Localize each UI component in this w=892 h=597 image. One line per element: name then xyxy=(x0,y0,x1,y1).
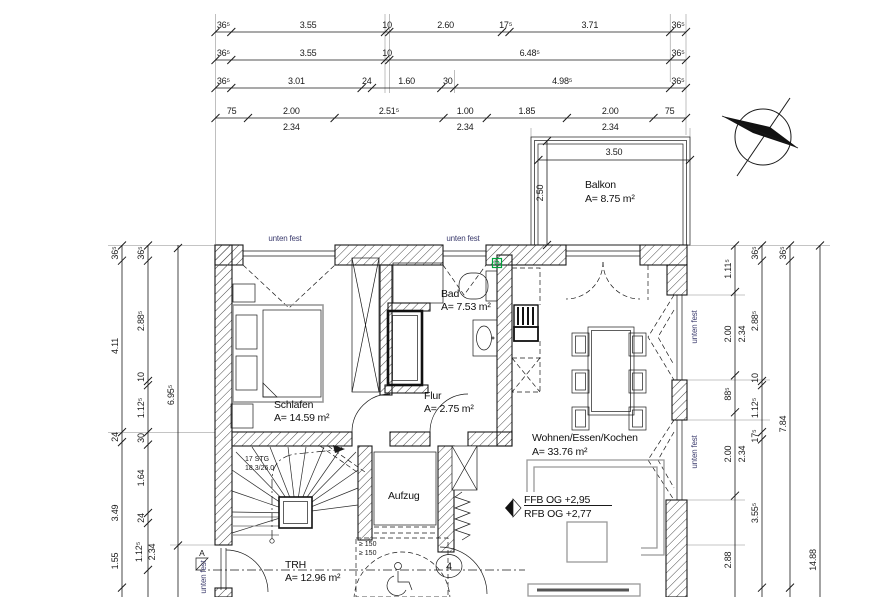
dim-label: 10 xyxy=(750,373,760,383)
dim-sublabel: 2.34 xyxy=(457,122,474,132)
room-label-flur: Flur xyxy=(424,390,442,402)
room-label-wohnen: Wohnen/Essen/Kochen xyxy=(532,432,638,444)
stair-ratio-label: 18.3/26.0 xyxy=(245,465,274,472)
unten-fest-label: unten fest xyxy=(268,234,302,243)
dim-label: 24 xyxy=(110,432,120,442)
shaft xyxy=(452,446,477,490)
living-furniture xyxy=(527,460,664,596)
chair xyxy=(572,370,589,393)
room-area-schlafen: A= 14.59 m² xyxy=(274,412,330,424)
dim-sublabel: 2.34 xyxy=(737,445,747,462)
turning-dim-2: ≥ 150 xyxy=(359,550,377,557)
unten-fest-label: unten fest xyxy=(690,434,699,468)
unten-fest-label: unten fest xyxy=(446,234,480,243)
dim-label: 10 xyxy=(136,372,146,382)
dim-label: 36⁵ xyxy=(750,246,760,260)
dim-label: 30 xyxy=(443,76,453,86)
room-area-bad: A= 7.53 m² xyxy=(441,301,491,313)
room-area-wohnen: A= 33.76 m² xyxy=(532,446,588,458)
turning-dim-1: ≥ 150 xyxy=(359,541,377,548)
stove xyxy=(514,305,538,341)
floor-plan-canvas: 36⁵ 3.55 10 2.60 17⁵ 3.71 36⁵ 36⁵ 3.55 1… xyxy=(0,0,892,597)
dim-label: 75 xyxy=(227,106,237,116)
dim-label: 1.55 xyxy=(110,552,120,569)
dim-label: 1.12⁵ xyxy=(750,397,760,418)
dim-label: 1.12⁵ xyxy=(136,397,146,418)
washbasin xyxy=(473,320,497,356)
section-marker-label: A xyxy=(199,548,205,558)
dim-label: 24 xyxy=(136,513,146,523)
dimension-labels-right: 1.11⁵ 2.00 2.34 88⁵ 2.00 2.34 2.88 36⁵ 2… xyxy=(723,246,818,571)
room-area-balkon: A= 8.75 m² xyxy=(585,193,635,205)
shower xyxy=(388,311,422,385)
dim-sublabel: 2.34 xyxy=(147,543,157,560)
room-label-balkon: Balkon xyxy=(585,179,616,191)
balcony: 3.50 2.50 Balkon A= 8.75 m² xyxy=(531,137,694,249)
dim-label: 2.51⁵ xyxy=(379,106,400,116)
stair: 17 STG 18.3/26.0 xyxy=(232,445,365,543)
radiator xyxy=(455,492,470,540)
door-arc-trh-entry xyxy=(226,550,268,592)
dim-label: 1.12⁵ xyxy=(134,541,144,562)
chair xyxy=(572,333,589,356)
room-label-schlafen: Schlafen xyxy=(274,399,314,411)
dim-label: 1.11⁵ xyxy=(723,259,733,279)
unten-fest-label: unten fest xyxy=(690,309,699,343)
dimension-labels-top: 36⁵ 3.55 10 2.60 17⁵ 3.71 36⁵ 36⁵ 3.55 1… xyxy=(217,20,685,132)
room-label-trh: TRH xyxy=(285,559,306,571)
wardrobe xyxy=(352,258,379,392)
dim-label: 36⁵ xyxy=(217,48,231,58)
turning-circle: ≥ 150 ≥ 150 xyxy=(354,538,450,597)
dim-label: 2.00 xyxy=(723,325,733,342)
dim-label: 10 xyxy=(382,20,392,30)
dim-label: 2.88⁵ xyxy=(750,310,760,331)
dim-label: 2.88 xyxy=(723,551,733,568)
dim-label: 2.60 xyxy=(437,20,454,30)
planned-appliance xyxy=(512,358,540,392)
floor-plan-sheet: 36⁵ 3.55 10 2.60 17⁵ 3.71 36⁵ 36⁵ 3.55 1… xyxy=(0,0,892,597)
dim-label: 30 xyxy=(136,433,146,443)
dim-label: 3.71 xyxy=(581,20,598,30)
bathroom-fixtures xyxy=(388,263,497,385)
dim-label: 3.49 xyxy=(110,504,120,521)
dim-label: 2.88⁵ xyxy=(136,310,146,331)
dim-label: 6.95⁵ xyxy=(166,384,176,405)
dimension-labels-left: 36⁵ 4.11 24 3.49 1.55 36⁵ 2.88⁵ 10 1.12⁵… xyxy=(110,246,176,569)
dim-label: 2.00 xyxy=(602,106,619,116)
dining-set xyxy=(572,327,646,430)
dim-sublabel: 2.34 xyxy=(602,122,619,132)
room-label-bad: Bad xyxy=(441,288,459,300)
dim-label: 17⁵ xyxy=(750,429,760,443)
north-arrow-icon xyxy=(722,98,798,176)
nightstand xyxy=(233,284,255,302)
balcony-width-dim: 3.50 xyxy=(606,147,623,157)
dim-label: 14.88 xyxy=(808,549,818,571)
dim-label: 3.01 xyxy=(288,76,305,86)
dim-label: 36⁵ xyxy=(672,48,686,58)
dim-sublabel: 2.34 xyxy=(283,122,300,132)
chair xyxy=(629,407,646,430)
door-arc-schlafen xyxy=(352,394,390,432)
elevator-car xyxy=(374,452,436,525)
dim-label: 36⁵ xyxy=(672,20,686,30)
position-number: 4 xyxy=(446,561,452,573)
dim-label: 10 xyxy=(382,48,392,58)
balcony-depth-dim: 2.50 xyxy=(535,184,545,201)
dim-label: 4.11 xyxy=(110,338,120,354)
room-area-trh: A= 12.96 m² xyxy=(285,572,341,584)
dim-label: 36⁵ xyxy=(778,246,788,260)
dim-label: 36⁵ xyxy=(671,76,685,86)
coffee-table xyxy=(567,522,607,562)
dim-label: 17⁵ xyxy=(499,20,513,30)
dim-label: 2.00 xyxy=(283,106,300,116)
level-ffb-label: FFB OG +2,95 xyxy=(524,494,591,506)
dim-label: 1.85 xyxy=(518,106,535,116)
chair xyxy=(629,333,646,356)
dim-label: 3.55⁵ xyxy=(750,502,760,523)
position-badge-4: 4 xyxy=(436,555,462,578)
room-area-flur: A= 2.75 m² xyxy=(424,403,474,415)
room-label-aufzug: Aufzug xyxy=(388,490,420,502)
dim-label: 36⁵ xyxy=(110,246,120,260)
chair xyxy=(572,407,589,430)
bed xyxy=(233,305,323,402)
dim-label: 36⁵ xyxy=(217,20,231,30)
dim-label: 88⁵ xyxy=(723,387,733,401)
chair xyxy=(629,370,646,393)
dining-table xyxy=(588,327,634,415)
nightstand xyxy=(231,404,253,428)
dim-label: 36⁵ xyxy=(136,246,146,260)
dim-label: 75 xyxy=(665,106,675,116)
dim-sublabel: 2.34 xyxy=(737,325,747,342)
level-rfb-label: RFB OG +2,77 xyxy=(524,508,592,520)
stair-steps-label: 17 STG xyxy=(245,456,269,463)
kitchen xyxy=(512,268,540,392)
level-marker: FFB OG +2,95 RFB OG +2,77 xyxy=(505,494,612,520)
dim-label: 1.64 xyxy=(136,469,146,486)
dim-label: 1.60 xyxy=(398,76,415,86)
dim-label: 1.00 xyxy=(457,106,474,116)
washer-niche xyxy=(393,263,443,303)
dim-label: 6.48⁵ xyxy=(520,48,541,58)
dim-label: 2.00 xyxy=(723,445,733,462)
dim-label: 24 xyxy=(362,76,372,86)
dim-label: 36⁵ xyxy=(217,76,231,86)
unten-fest-label: unten fest xyxy=(199,559,208,593)
dim-label: 3.55 xyxy=(300,20,317,30)
dim-label: 7.84 xyxy=(778,415,788,432)
dim-label: 3.55 xyxy=(300,48,317,58)
wheelchair-icon xyxy=(387,563,412,596)
dim-label: 4.98⁵ xyxy=(552,76,573,86)
